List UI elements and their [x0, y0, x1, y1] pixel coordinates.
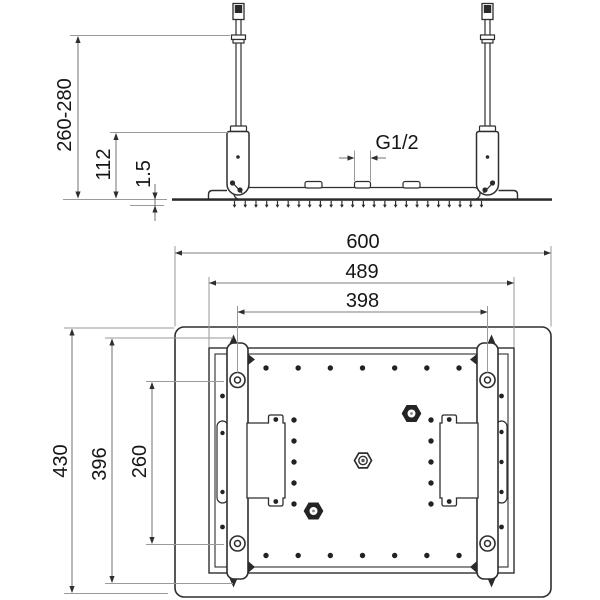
hole-dot — [428, 501, 433, 506]
nozzle-tip — [351, 205, 355, 208]
hole-dot — [456, 365, 461, 370]
dim-label-panel-width: 489 — [345, 261, 378, 283]
bolt-hole — [480, 373, 495, 388]
nozzle-tip — [437, 205, 441, 208]
drawing-page: 260-280 112 1.5 G1/2 — [0, 0, 600, 600]
hole-dot — [499, 460, 503, 464]
nozzle-tip — [469, 205, 473, 208]
hole-dot — [360, 553, 365, 558]
nozzle-tip — [329, 205, 333, 208]
rod-flange — [480, 126, 496, 132]
rod-collar — [232, 35, 246, 40]
hex-nut-upper-right — [403, 406, 421, 422]
dim-label-bracket-drop: 112 — [93, 149, 115, 181]
hole-dot — [291, 459, 296, 464]
dim-label-panel-gap: 1.5 — [133, 160, 155, 188]
bracket-body — [227, 132, 249, 196]
bolt-hole — [230, 536, 245, 551]
dim-label-inlet-thread: G1/2 — [375, 132, 418, 154]
nozzle-tip — [265, 205, 269, 208]
plan-view: 600 489 398 430 — [50, 231, 551, 597]
hole-dot — [428, 480, 433, 485]
hole-dot — [392, 365, 397, 370]
nozzle-tip — [394, 205, 398, 208]
hinge-pin — [237, 187, 242, 192]
hole-dot — [328, 553, 333, 558]
nozzle-tip — [276, 205, 280, 208]
inlet-connector — [355, 182, 371, 189]
hole-dot — [291, 480, 296, 485]
hole-dot — [428, 417, 433, 422]
nozzle-tip — [480, 205, 484, 208]
nozzle-tip — [308, 205, 312, 208]
bolt-hole — [230, 373, 245, 388]
hinge-pin — [482, 187, 487, 192]
hole-dot — [499, 430, 503, 434]
hole-dot — [220, 394, 225, 399]
fixing-tab-left — [305, 182, 322, 189]
spray-nozzles — [233, 201, 484, 208]
fixing-tab-right — [403, 182, 420, 189]
nozzle-tip — [361, 205, 365, 208]
nozzle-tip — [286, 205, 290, 208]
hole-dot — [360, 365, 365, 370]
hole-dot — [428, 459, 433, 464]
hole-dot — [424, 365, 429, 370]
bracket-foot — [499, 191, 518, 199]
hole-dot — [295, 365, 300, 370]
nozzle-tip — [415, 205, 419, 208]
hole-dot — [220, 525, 225, 530]
nozzle-tip — [372, 205, 376, 208]
hole-dot — [499, 394, 504, 399]
cutout-left — [247, 415, 285, 506]
hole-dot — [273, 499, 278, 504]
bracket-foot — [209, 191, 228, 199]
thread-section — [484, 5, 491, 13]
hanger-rod-right — [477, 4, 518, 199]
spray-bar — [234, 188, 480, 200]
hole-dot — [428, 438, 433, 443]
hole-dot — [263, 553, 268, 558]
dim-label-overall-depth: 430 — [50, 444, 72, 477]
nozzle-tip — [447, 205, 451, 208]
nozzle-tip — [297, 205, 301, 208]
thread-section — [235, 5, 242, 13]
nozzle-tip — [426, 205, 430, 208]
hole-dot — [273, 417, 278, 422]
hinge-pin — [230, 180, 235, 185]
dim-label-rail-span: 396 — [89, 447, 111, 480]
hole-dot — [424, 553, 429, 558]
technical-drawing: 260-280 112 1.5 G1/2 — [0, 0, 600, 600]
bolt-hole — [480, 536, 495, 551]
hole-dot — [220, 490, 224, 494]
rod-flange — [231, 126, 247, 132]
hex-nut-center — [355, 453, 372, 468]
ceiling-panel — [172, 198, 552, 201]
side-view: 260-280 112 1.5 G1/2 — [54, 4, 552, 222]
hole-dot — [291, 417, 296, 422]
dim-bracket-drop: 112 — [93, 133, 228, 199]
nozzle-tip — [233, 205, 237, 208]
nozzle-tip — [458, 205, 462, 208]
hole-dot — [456, 553, 461, 558]
dim-label-mounting-height: 260-280 — [54, 78, 76, 151]
dim-label-rod-spacing: 398 — [346, 290, 379, 312]
dim-panel-gap: 1.5 — [130, 160, 167, 221]
hanger-rod-left — [209, 4, 250, 199]
dim-inlet-thread: G1/2 — [339, 132, 419, 181]
hole-dot — [447, 499, 452, 504]
hole-dot — [328, 365, 333, 370]
cutout-right — [440, 415, 478, 506]
hole-dot — [499, 525, 504, 530]
nozzle-tip — [319, 205, 323, 208]
dim-label-overall-width: 600 — [346, 231, 379, 253]
nozzle-tip — [383, 205, 387, 208]
hex-nut-lower-left — [305, 503, 323, 519]
nozzle-tip — [340, 205, 344, 208]
hole-dot — [499, 490, 503, 494]
dim-label-bolt-spacing: 260 — [129, 445, 151, 478]
hole-dot — [263, 365, 268, 370]
hole-dot — [220, 431, 224, 435]
hole-dot — [447, 417, 452, 422]
nozzle-tip — [243, 205, 247, 208]
hole-dot — [291, 438, 296, 443]
nozzle-tip — [254, 205, 258, 208]
rod-collar — [481, 35, 495, 40]
bracket-body — [477, 132, 499, 196]
nozzle-tip — [404, 205, 408, 208]
hinge-pin — [490, 180, 495, 185]
hole-dot — [392, 553, 397, 558]
hole-dot — [291, 501, 296, 506]
hole-dot — [295, 553, 300, 558]
